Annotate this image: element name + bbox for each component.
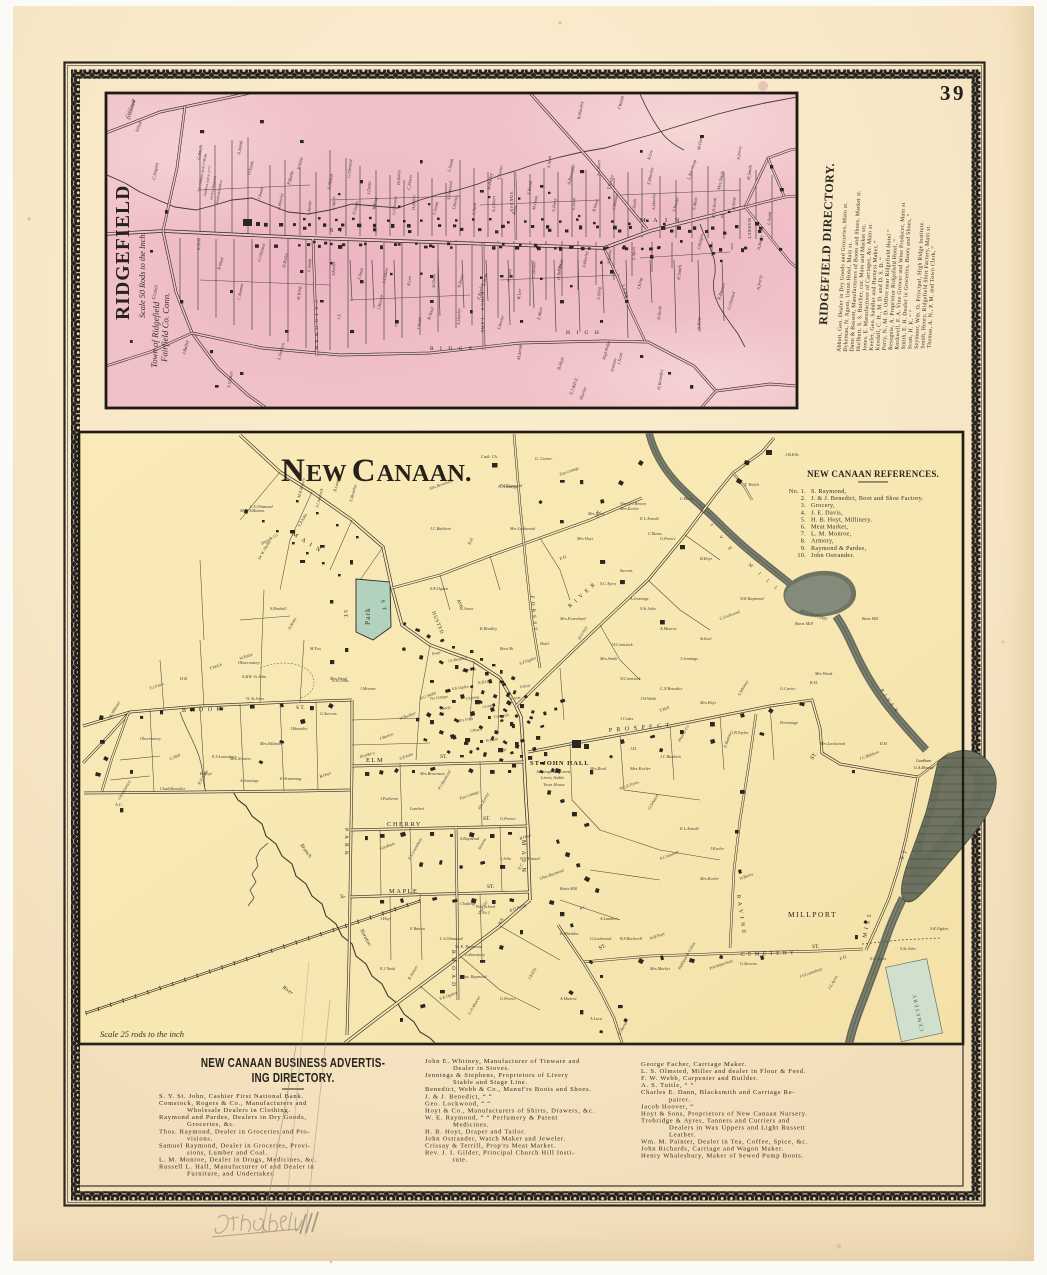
svg-text:6.: 6. xyxy=(801,524,806,531)
svg-text:S.St.John.: S.St.John. xyxy=(332,678,349,683)
svg-text:Raymond & Pardee,: Raymond & Pardee, xyxy=(811,545,867,552)
svg-text:H.Bailey: H.Bailey xyxy=(411,195,416,211)
svg-text:G.Pearce: G.Pearce xyxy=(500,816,516,821)
svg-text:L.S.Olmstead: L.S.Olmstead xyxy=(439,936,463,941)
svg-text:C.Burns: C.Burns xyxy=(680,496,694,501)
svg-text:A.C.: A.C. xyxy=(114,802,123,807)
svg-text:Burts Mill: Burts Mill xyxy=(862,616,879,621)
svg-text:W.Comstock: W.Comstock xyxy=(620,676,641,681)
svg-text:Charles E. Dann, Blacksmith a: Charles E. Dann, Blacksmith and Carriage… xyxy=(641,1089,795,1096)
svg-text:J.C.Baldwin: J.C.Baldwin xyxy=(660,754,681,759)
svg-text:F. W. Webb, Carpenter and Buil: F. W. Webb, Carpenter and Builder. xyxy=(641,1075,758,1082)
svg-text:E.L.Arnold: E.L.Arnold xyxy=(639,516,660,521)
svg-text:Dealers in Wax Uppers and Ligh: Dealers in Wax Uppers and Light Russett xyxy=(669,1124,806,1131)
svg-text:E.J.Nash: E.J.Nash xyxy=(379,966,395,971)
svg-text:School: School xyxy=(700,636,712,641)
svg-text:Mrs.Keeler: Mrs.Keeler xyxy=(699,876,719,881)
svg-text:ST.: ST. xyxy=(440,754,448,760)
svg-text:9.: 9. xyxy=(801,545,806,552)
svg-text:J.Keeler: J.Keeler xyxy=(710,846,724,851)
svg-text:Hoyt & Co., Manufacturers of S: Hoyt & Co., Manufacturers of Shirts, Dra… xyxy=(425,1107,595,1114)
svg-text:Mrs.Reed: Mrs.Reed xyxy=(589,766,607,771)
svg-text:A.Gilbert: A.Gilbert xyxy=(596,159,601,177)
svg-text:Burts Mill: Burts Mill xyxy=(795,621,814,626)
svg-text:S.St.John: S.St.John xyxy=(900,946,916,951)
svg-text:Pub School: Pub School xyxy=(475,904,496,909)
svg-text:Raymond and Pardee, Dealers in: Raymond and Pardee, Dealers in Dry Goods… xyxy=(159,1114,307,1121)
svg-text:S T.: S T. xyxy=(342,610,347,618)
svg-text:J.Benedict: J.Benedict xyxy=(290,726,308,731)
svg-text:Dealer in Stoves.: Dealer in Stoves. xyxy=(453,1065,510,1072)
svg-text:John Ostrander, Watch Maker an: John Ostrander, Watch Maker and Jeweler. xyxy=(425,1136,566,1143)
svg-text:J.W.Webb: J.W.Webb xyxy=(640,696,656,701)
svg-text:Trobridge & Ayres, Tanners a: Trobridge & Ayres, Tanners and Curriers … xyxy=(641,1117,790,1124)
svg-text:John E. Whitney, Manufacturer: John E. Whitney, Manufacturer of Tinware… xyxy=(425,1058,580,1065)
svg-text:B.Hoyt: B.Hoyt xyxy=(700,556,713,561)
svg-text:C.N.Benedict: C.N.Benedict xyxy=(660,686,683,691)
svg-text:Hotel: Hotel xyxy=(539,641,550,646)
svg-text:Scale 50 Rods to the Inch.: Scale 50 Rods to the Inch. xyxy=(138,233,147,319)
svg-text:Clothing: Clothing xyxy=(460,901,475,906)
svg-text:G.Pearce: G.Pearce xyxy=(500,996,516,1001)
svg-text:L. M. Monroe, Dealer in Drugs,: L. M. Monroe, Dealer in Drugs, Medicines… xyxy=(159,1156,317,1163)
svg-text:Scale 25 rods to the inch: Scale 25 rods to the inch xyxy=(100,1029,184,1039)
svg-text:Mrs.Fourchard: Mrs.Fourchard xyxy=(559,616,587,621)
svg-text:A.Jennings: A.Jennings xyxy=(239,778,259,783)
svg-text:ELM: ELM xyxy=(366,757,384,764)
svg-text:Wholesale Dealers in Clothing.: Wholesale Dealers in Clothing. xyxy=(187,1107,291,1114)
svg-text:T.Keeler: T.Keeler xyxy=(331,261,336,276)
svg-text:Mrs.Market: Mrs.Market xyxy=(649,966,671,971)
svg-text:R.H.: R.H. xyxy=(879,741,888,746)
svg-text:10.: 10. xyxy=(797,552,806,559)
svg-text:A.Locu: A.Locu xyxy=(589,1016,602,1021)
svg-text:H. B. Hoyt, Millinery.: H. B. Hoyt, Millinery. xyxy=(811,516,873,523)
svg-text:Mrs.Lockwood: Mrs.Lockwood xyxy=(509,526,536,531)
svg-text:E.Scott: E.Scott xyxy=(571,197,576,211)
svg-text:G.Lockwood: G.Lockwood xyxy=(590,936,612,941)
svg-text:J.S.: J.S. xyxy=(336,313,342,320)
svg-text:George Facher, Carriage Maker: George Facher, Carriage Maker. xyxy=(641,1061,747,1068)
svg-text:7.: 7. xyxy=(801,531,806,538)
svg-text:J.C.Baldwin: J.C.Baldwin xyxy=(430,526,451,531)
svg-text:No 1: No 1 xyxy=(481,910,490,915)
svg-text:A.Monroe: A.Monroe xyxy=(659,626,677,631)
svg-text:sions, Lumber and Coal.: sions, Lumber and Coal. xyxy=(187,1149,268,1156)
svg-text:K.Bradley: K.Bradley xyxy=(479,626,497,631)
svg-text:Groceries, &c.: Groceries, &c. xyxy=(187,1121,235,1128)
svg-text:MAPLE: MAPLE xyxy=(389,888,419,895)
svg-text:S T: S T xyxy=(330,228,344,234)
svg-text:3.: 3. xyxy=(801,502,806,509)
svg-text:John Ostrander.: John Ostrander. xyxy=(811,552,854,559)
svg-text:Grocery,: Grocery, xyxy=(811,502,835,509)
svg-text:E.Armstrong: E.Armstrong xyxy=(279,776,301,781)
svg-text:Boot Sh.: Boot Sh. xyxy=(500,646,514,651)
svg-text:L. S. Olmsted, Miller and deal: L. S. Olmsted, Miller and dealer in Flou… xyxy=(641,1068,806,1075)
svg-text:ST.: ST. xyxy=(487,884,495,890)
svg-text:Mrs.Smith: Mrs.Smith xyxy=(599,656,617,661)
svg-text:5.: 5. xyxy=(801,516,806,523)
svg-text:ST JOHN HALL: ST JOHN HALL xyxy=(530,760,590,767)
svg-text:Jennings & Stephens, Proprieto: Jennings & Stephens, Proprietors of Live… xyxy=(425,1072,569,1079)
svg-text:Chas. Raymond: Chas. Raymond xyxy=(460,974,487,979)
svg-text:Samuel Raymond, Dealer in Groc: Samuel Raymond, Dealer in Groceries, Pro… xyxy=(159,1142,311,1149)
svg-text:Meat Market,: Meat Market, xyxy=(811,524,848,531)
svg-text:W. E. Raymond: W. E. Raymond xyxy=(455,944,483,949)
svg-text:KINGS: KINGS xyxy=(480,292,485,311)
svg-text:A.Hawley: A.Hawley xyxy=(651,193,656,211)
svg-text:Mrs.Keeler: Mrs.Keeler xyxy=(619,506,639,511)
svg-text:Thos. Raymond, Dealer in Groce: Thos. Raymond, Dealer in Groceries and P… xyxy=(159,1128,310,1135)
svg-text:Geo. Lockwood, “: Geo. Lockwood, “ “ xyxy=(425,1100,491,1107)
svg-text:tute.: tute. xyxy=(453,1157,468,1164)
svg-text:E.Scott: E.Scott xyxy=(196,237,201,251)
svg-text:Observatory: Observatory xyxy=(140,736,161,741)
svg-text:S.C.Ayres: S.C.Ayres xyxy=(870,956,886,961)
svg-text:S.&W. St.John: S.&W. St.John xyxy=(242,674,266,679)
svg-text:Observatory: Observatory xyxy=(238,660,260,665)
svg-text:Mrs Reed: Mrs Reed xyxy=(587,511,605,516)
svg-text:A.Lambert: A.Lambert xyxy=(599,916,619,921)
svg-text:C A T O O N A H: C A T O O N A H xyxy=(314,300,319,351)
svg-text:Mrs. Silliman.: Mrs. Silliman. xyxy=(239,508,265,513)
svg-text:E.S.Lounsbury: E.S.Lounsbury xyxy=(211,754,237,759)
svg-text:2.: 2. xyxy=(801,495,806,502)
svg-text:J.Hoyt: J.Hoyt xyxy=(380,916,392,921)
svg-text:John Richards, Carriage and Wa: John Richards, Carriage and Wagon Maker. xyxy=(641,1146,784,1153)
svg-text:S. Raymond,: S. Raymond, xyxy=(811,488,847,495)
svg-text:W.King: W.King xyxy=(696,316,701,330)
svg-text:Burts Mill: Burts Mill xyxy=(560,886,578,891)
svg-text:Chad.Benedict: Chad.Benedict xyxy=(160,786,186,791)
svg-text:G.Carter: G.Carter xyxy=(780,686,796,691)
svg-text:W.E.Raymond: W.E.Raymond xyxy=(740,596,764,601)
svg-text:E.Main: E.Main xyxy=(331,197,336,211)
svg-text:Crissay & Terrill, Prop'rs Mea: Crissay & Terrill, Prop'rs Meat Market. xyxy=(425,1143,556,1150)
svg-text:Armory,: Armory, xyxy=(811,538,834,545)
svg-text:Parsonage: Parsonage xyxy=(779,720,798,725)
svg-text:S T: S T xyxy=(712,214,726,220)
svg-text:Mrs Keeler: Mrs Keeler xyxy=(629,766,651,771)
svg-text:CHERRY: CHERRY xyxy=(387,821,422,828)
svg-text:Jennings & Stevens: Jennings & Stevens xyxy=(536,769,571,774)
svg-text:8.: 8. xyxy=(801,538,806,545)
svg-text:E.L.Arnold: E.L.Arnold xyxy=(679,826,700,831)
svg-text:M.Fox: M.Fox xyxy=(309,646,321,651)
svg-text:G.Stevens: G.Stevens xyxy=(740,961,757,966)
svg-text:H. B. Hoyt, Draper and Tailor.: H. B. Hoyt, Draper and Tailor. xyxy=(425,1129,526,1136)
svg-text:A.Jennings: A.Jennings xyxy=(629,596,649,601)
svg-text:Gurdham: Gurdham xyxy=(916,758,931,763)
svg-text:W.King: W.King xyxy=(731,196,736,210)
svg-text:NEW CANAAN REFERENCES.: NEW CANAAN REFERENCES. xyxy=(807,469,939,479)
svg-text:pairer.: pairer. xyxy=(669,1096,691,1103)
svg-text:J. & J. Benedict, “: J. & J. Benedict, “ “ xyxy=(425,1093,492,1100)
svg-text:B R O A D: B R O A D xyxy=(450,950,456,988)
svg-text:J.Jennings: J.Jennings xyxy=(680,656,698,661)
svg-text:G.A.Monroe: G.A.Monroe xyxy=(914,765,934,770)
svg-text:C.Burns: C.Burns xyxy=(648,531,662,536)
svg-text:M A I N: M A I N xyxy=(640,217,683,224)
svg-text:ST.: ST. xyxy=(483,816,491,822)
svg-text:visions.: visions. xyxy=(187,1135,213,1142)
svg-text:S.K.Ogden: S.K.Ogden xyxy=(930,926,948,931)
svg-text:E.Whidden: E.Whidden xyxy=(559,931,579,936)
svg-text:J.Padieron: J.Padieron xyxy=(380,796,398,801)
svg-text:W. E. Raymond, “ “ Per: W. E. Raymond, “ “ Perfumery & Patent xyxy=(425,1114,558,1121)
svg-text:Stevens: Stevens xyxy=(620,568,633,573)
svg-text:H.Bailey: H.Bailey xyxy=(396,170,401,186)
svg-text:4.: 4. xyxy=(801,509,806,516)
svg-text:W.Comstock: W.Comstock xyxy=(612,642,633,647)
svg-text:S.C.Ayres: S.C.Ayres xyxy=(600,581,616,586)
svg-text:J.Dunn: J.Dunn xyxy=(366,181,372,195)
svg-text:J.D.: J.D. xyxy=(630,746,637,751)
svg-text:MARKET: MARKET xyxy=(747,218,752,239)
svg-text:MILLPORT: MILLPORT xyxy=(788,910,837,919)
svg-text:J.Codes: J.Codes xyxy=(620,716,634,721)
svg-text:A. S. Tuttle, “: A. S. Tuttle, “ “ xyxy=(641,1082,694,1089)
svg-text:G.B.Taylor: G.B.Taylor xyxy=(730,730,749,735)
svg-text:M.Dann: M.Dann xyxy=(431,274,436,289)
svg-text:P A R K: P A R K xyxy=(343,828,349,857)
svg-text:S.K.Ogden: S.K.Ogden xyxy=(430,586,448,591)
svg-text:E.Button: E.Button xyxy=(409,926,425,931)
svg-text:A.Gilbert: A.Gilbert xyxy=(491,195,496,213)
svg-text:S.Raymond: S.Raymond xyxy=(460,836,480,841)
svg-text:S.St.John: S.St.John xyxy=(640,606,656,611)
svg-text:C.Boutan: C.Boutan xyxy=(531,262,536,278)
svg-text:J. & J. Benedict, Boot and Sh: J. & J. Benedict, Boot and Shoe Factory. xyxy=(811,495,924,502)
svg-text:R I D G E: R I D G E xyxy=(430,346,475,352)
svg-text:L. M. Monroe,: L. M. Monroe, xyxy=(811,531,852,538)
svg-text:D.B.: D.B. xyxy=(179,676,188,681)
svg-text:Cath. Ch.: Cath. Ch. xyxy=(481,454,498,459)
svg-text:No. 1.: No. 1. xyxy=(789,488,806,495)
svg-text:Jacob Hoover, “: Jacob Hoover, “ xyxy=(641,1103,694,1110)
svg-text:Wm. M. Painter, Dealer in Tea,: Wm. M. Painter, Dealer in Tea, Coffee, S… xyxy=(641,1139,808,1146)
svg-text:H I G H: H I G H xyxy=(566,330,601,336)
svg-text:Leather.: Leather. xyxy=(669,1132,696,1139)
svg-text:A.Hawley: A.Hawley xyxy=(456,308,461,326)
svg-text:A.Tennings: A.Tennings xyxy=(497,484,518,489)
svg-text:LANE: LANE xyxy=(480,318,485,334)
svg-text:Rev. J. I. Gilder, Principal C: Rev. J. I. Gilder, Principal Church Hill… xyxy=(425,1150,575,1157)
svg-text:Medicines.: Medicines. xyxy=(453,1121,489,1128)
svg-text:Laboratory: Laboratory xyxy=(464,952,485,957)
svg-text:S T.: S T. xyxy=(296,705,305,711)
svg-text:J.Monroe: J.Monroe xyxy=(360,686,376,691)
svg-text:RIDGEFIELD: RIDGEFIELD xyxy=(113,184,134,320)
svg-text:W. St.John.: W. St.John. xyxy=(246,696,265,701)
svg-text:Wm of J.Brown: Wm of J.Brown xyxy=(620,501,646,506)
svg-text:G. Carter: G. Carter xyxy=(535,456,552,461)
svg-text:G.Pearce: G.Pearce xyxy=(660,536,676,541)
svg-text:Mrs.Lockwood: Mrs.Lockwood xyxy=(819,741,846,746)
svg-text:K.H.: K.H. xyxy=(809,680,818,685)
svg-text:B.S.Rockwell: B.S.Rockwell xyxy=(620,936,643,941)
svg-text:Mrs.Silliman: Mrs.Silliman xyxy=(259,741,282,746)
svg-text:J.Jelin: J.Jelin xyxy=(500,856,511,861)
svg-text:A.Monroe: A.Monroe xyxy=(559,996,577,1001)
svg-text:39: 39 xyxy=(940,81,966,105)
svg-text:G.Stevens: G.Stevens xyxy=(320,711,337,716)
svg-text:M A I N: M A I N xyxy=(520,840,526,874)
svg-text:Stable and Stage Line.: Stable and Stage Line. xyxy=(453,1079,528,1086)
svg-text:Furniture, and Undertaker.: Furniture, and Undertaker. xyxy=(187,1171,275,1178)
svg-text:J. E. Davis,: J. E. Davis, xyxy=(811,509,843,516)
svg-text:Mrs.Brownson: Mrs.Brownson xyxy=(419,771,445,776)
svg-text:Mrs.Hoyt: Mrs.Hoyt xyxy=(699,700,717,705)
svg-text:Livery Stable: Livery Stable xyxy=(540,775,564,780)
svg-text:S. Y. St. John, Cashier First: S. Y. St. John, Cashier First National B… xyxy=(159,1093,304,1100)
svg-text:Town House: Town House xyxy=(543,782,565,787)
svg-text:Russell L. Hall, Manufacturer: Russell L. Hall, Manufacturer of and Dea… xyxy=(159,1164,314,1171)
svg-text:Mrs Wood: Mrs Wood xyxy=(814,671,833,676)
svg-text:E.Main: E.Main xyxy=(631,247,636,261)
svg-text:Hoyt & Sons, Proprietors of Ne: Hoyt & Sons, Proprietors of New Canaan N… xyxy=(641,1110,808,1117)
svg-text:Mrs Hoyt: Mrs Hoyt xyxy=(576,536,594,541)
svg-text:Benedict, Webb & Co., Manuf'rs: Benedict, Webb & Co., Manuf'rs Boots and… xyxy=(425,1086,592,1093)
svg-text:Lambert: Lambert xyxy=(409,806,425,811)
svg-text:S.Birdsall: S.Birdsall xyxy=(270,606,287,611)
svg-text:Park: Park xyxy=(363,607,372,625)
svg-text:T. Welch: T. Welch xyxy=(744,482,760,487)
svg-text:J.B.Ells: J.B.Ells xyxy=(785,452,799,457)
svg-text:Henry Whalesbury, Maker of Sew: Henry Whalesbury, Maker of Sewed Pump Bo… xyxy=(641,1153,804,1160)
svg-text:ST.: ST. xyxy=(812,944,820,950)
svg-text:A.King: A.King xyxy=(596,286,602,301)
